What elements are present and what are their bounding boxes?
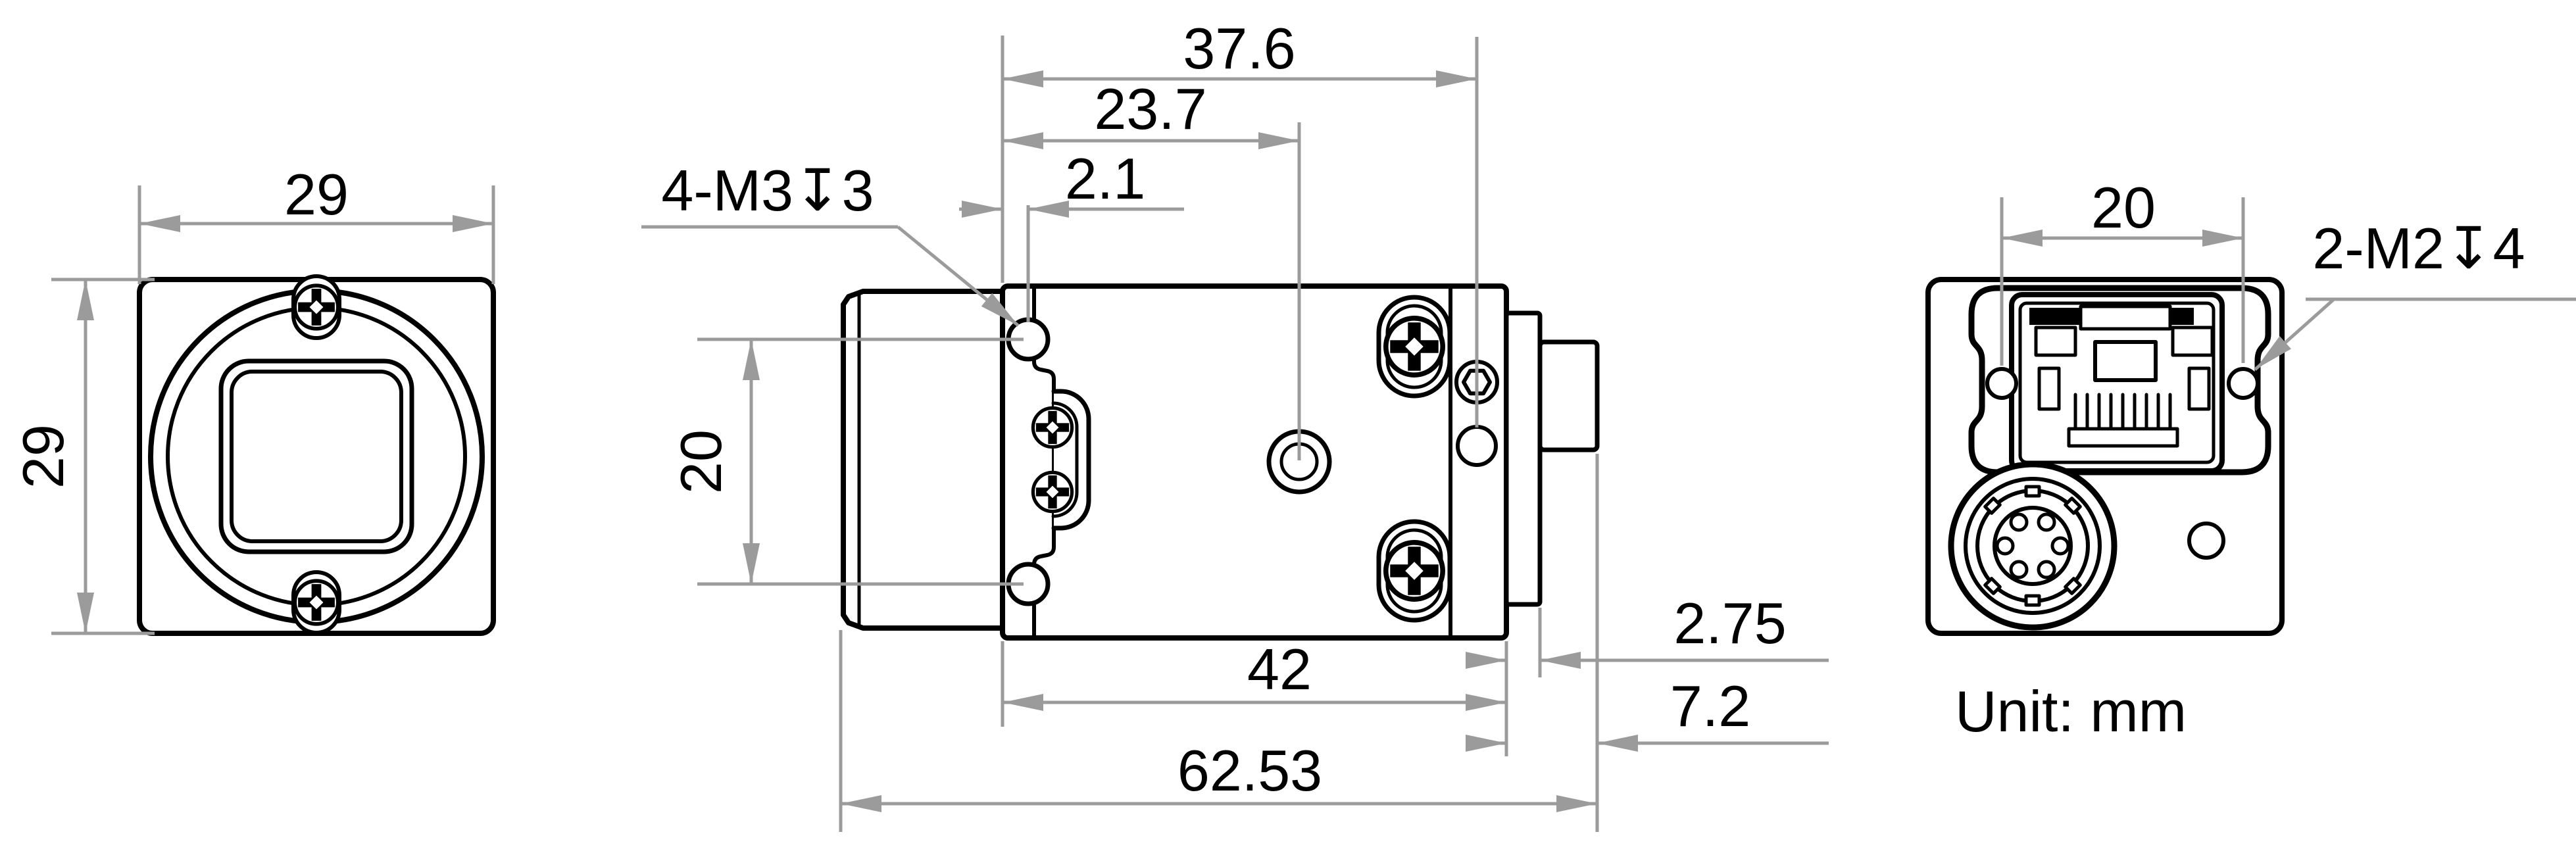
lens-barrel [843,291,1003,628]
camera-dimension-drawing: 29 29 37.6 23.7 2.1 4-M3↧3 20 42 [0,0,2576,853]
back-screw-top [1386,318,1443,375]
dim-62-53: 62.53 [1177,738,1322,803]
dim-front-height: 29 [11,424,76,489]
dim-front-width: 29 [284,162,349,227]
sensor-window-outer [221,361,412,552]
power-connector [1951,464,2114,627]
dim-back-20: 20 [2091,175,2156,240]
rj45-side-bar-left [2039,368,2059,409]
connector-keyway-top [2026,487,2039,496]
dim-37-6: 37.6 [1183,16,1295,81]
unit-note: Unit: mm [1955,679,2187,744]
dim-side-20: 20 [668,429,733,494]
rj45-latch-right [2173,328,2212,355]
dim-7-2: 7.2 [1670,673,1750,739]
side-slot-screw-top [1033,408,1072,447]
rj45-center-plug [2095,342,2156,380]
rj45-side-bar-right [2189,368,2209,409]
front-screw-top [295,285,338,329]
back-screw-bottom [1386,543,1443,599]
dim-2-1: 2.1 [1065,146,1145,211]
side-slot-screw-bottom [1033,472,1072,511]
technical-drawing-page: 29 29 37.6 23.7 2.1 4-M3↧3 20 42 [0,0,2576,853]
connector-keyway-bottom [2026,596,2039,605]
back-view [1928,280,2282,633]
m2-hole-left [1987,369,2016,398]
label-m3-threads: 4-M3↧3 [661,158,874,223]
dim-42: 42 [1247,637,1312,702]
rj45-latch-left [2036,328,2075,355]
label-m2-threads: 2-M2↧4 [2312,216,2525,281]
rear-connector-block [1540,342,1597,450]
dim-2-75: 2.75 [1673,591,1786,656]
dim-23-7: 23.7 [1094,76,1206,141]
rear-mount-hole [1458,427,1496,465]
rj45-pin-base [2069,429,2177,446]
led-indicator-hole [2189,524,2223,558]
m2-hole-right [2229,369,2258,398]
front-screw-bottom [295,581,338,624]
front-view [139,276,493,633]
rj45-key-tab [2081,306,2170,329]
rj45-port [2012,295,2222,471]
rear-step-plate [1506,313,1540,604]
